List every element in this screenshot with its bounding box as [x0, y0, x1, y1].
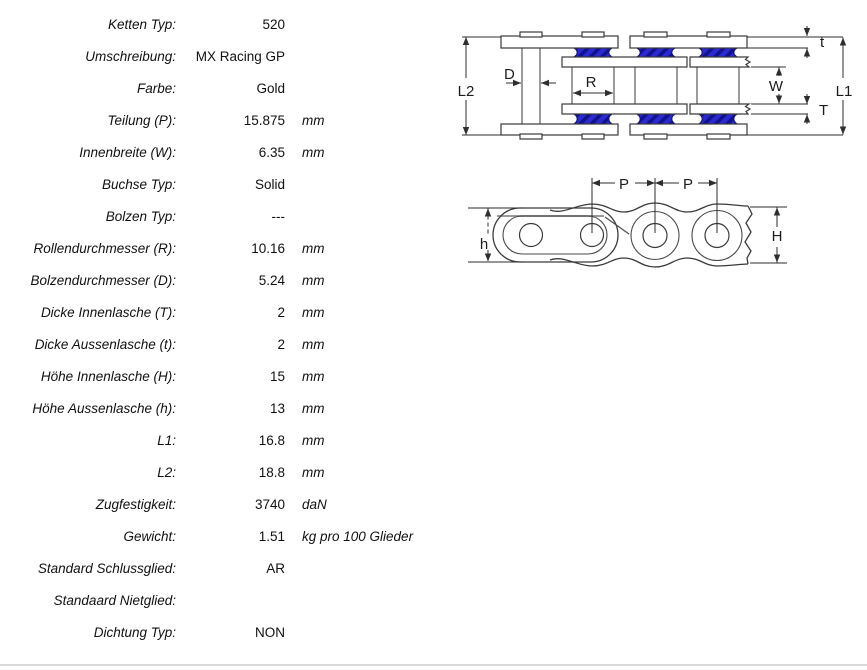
dim-label-l1: L1	[836, 83, 853, 100]
roller	[697, 113, 739, 125]
pin-end	[707, 134, 730, 139]
spec-row: Höhe Aussenlasche (h): 13 mm	[0, 393, 440, 425]
plate-edge-line	[605, 217, 629, 234]
spec-row: Bolzen Typ: ---	[0, 201, 440, 233]
dim-label-h: h	[480, 236, 488, 253]
spec-row: Ketten Typ: 520	[0, 9, 440, 41]
spec-row: Höhe Innenlasche (H): 15 mm	[0, 361, 440, 393]
spec-unit: mm	[302, 137, 437, 169]
pitch-extension-lines	[592, 178, 717, 233]
spec-label: Zugfestigkeit:	[0, 489, 176, 521]
outer-plate	[501, 124, 618, 135]
top-view-diagram: L2 D R W t T L1	[458, 26, 853, 139]
pin-end	[520, 134, 542, 139]
spec-unit: mm	[302, 265, 437, 297]
spec-label: L1:	[0, 425, 176, 457]
dim-label-d: D	[504, 66, 515, 83]
spec-value: 6.35	[180, 137, 285, 169]
spec-row: Teilung (P): 15.875 mm	[0, 105, 440, 137]
inner-plate	[562, 104, 687, 114]
roller	[572, 47, 614, 58]
spec-label: Farbe:	[0, 73, 176, 105]
dim-label-t-big: T	[819, 102, 828, 119]
spec-row: L2: 18.8 mm	[0, 457, 440, 489]
spec-label: Gewicht:	[0, 521, 176, 553]
dim-label-r: R	[586, 74, 597, 91]
spec-table: Ketten Typ: 520 Umschreibung: MX Racing …	[0, 9, 440, 649]
spec-unit: mm	[302, 329, 437, 361]
outer-plate	[501, 36, 618, 48]
break-edge	[745, 206, 752, 264]
spec-unit: mm	[302, 297, 437, 329]
spec-value: 3740	[180, 489, 285, 521]
spec-label: Innenbreite (W):	[0, 137, 176, 169]
spec-value: Gold	[180, 73, 285, 105]
pin-end	[707, 32, 730, 37]
pin-shaft	[522, 48, 540, 124]
dim-label-p2: P	[683, 176, 693, 193]
inner-plate	[690, 104, 750, 114]
spec-row: Rollendurchmesser (R): 10.16 mm	[0, 233, 440, 265]
spec-row: Dicke Innenlasche (T): 2 mm	[0, 297, 440, 329]
spec-label: Standaard Nietglied:	[0, 585, 176, 617]
spec-row: Standaard Nietglied:	[0, 585, 440, 617]
spec-row: Dichtung Typ: NON	[0, 617, 440, 649]
dim-label-p1: P	[619, 176, 629, 193]
chain-diagrams: L2 D R W t T L1	[440, 0, 867, 320]
spec-row: Dicke Aussenlasche (t): 2 mm	[0, 329, 440, 361]
pin-end	[520, 32, 542, 37]
spec-value: 5.24	[180, 265, 285, 297]
spec-label: Bolzen Typ:	[0, 201, 176, 233]
roller	[572, 113, 614, 125]
roller	[635, 47, 677, 58]
spec-value: 18.8	[180, 457, 285, 489]
spec-value: 15.875	[180, 105, 285, 137]
spec-value: ---	[180, 201, 285, 233]
pin-end	[582, 32, 604, 37]
spec-unit: kg pro 100 Glieder	[302, 521, 437, 553]
spec-label: Dicke Innenlasche (T):	[0, 297, 176, 329]
spec-label: Buchse Typ:	[0, 169, 176, 201]
spec-unit: mm	[302, 361, 437, 393]
spec-row: Buchse Typ: Solid	[0, 169, 440, 201]
spec-label: Teilung (P):	[0, 105, 176, 137]
spec-unit: mm	[302, 425, 437, 457]
spec-value: Solid	[180, 169, 285, 201]
dim-label-l2: L2	[458, 83, 475, 100]
spec-label: Höhe Aussenlasche (h):	[0, 393, 176, 425]
spec-value: 10.16	[180, 233, 285, 265]
spec-unit: mm	[302, 233, 437, 265]
pin-end	[644, 32, 667, 37]
pin-hole	[520, 224, 543, 247]
spec-value: MX Racing GP	[180, 41, 285, 73]
outer-plate	[630, 124, 747, 135]
spec-value: 2	[180, 329, 285, 361]
roller	[697, 47, 739, 58]
spec-value: 2	[180, 297, 285, 329]
roller	[635, 113, 677, 125]
inner-plate	[690, 57, 750, 67]
spec-value: 16.8	[180, 425, 285, 457]
dim-label-w: W	[769, 78, 784, 95]
bushing-lines	[572, 67, 739, 104]
spec-unit: mm	[302, 393, 437, 425]
spec-value: 13	[180, 393, 285, 425]
spec-label: Ketten Typ:	[0, 9, 176, 41]
bottom-divider	[0, 664, 867, 666]
spec-label: Umschreibung:	[0, 41, 176, 73]
spec-label: Dichtung Typ:	[0, 617, 176, 649]
spec-row: Bolzendurchmesser (D): 5.24 mm	[0, 265, 440, 297]
spec-value: 1.51	[180, 521, 285, 553]
spec-label: Bolzendurchmesser (D):	[0, 265, 176, 297]
spec-label: Rollendurchmesser (R):	[0, 233, 176, 265]
spec-label: L2:	[0, 457, 176, 489]
spec-unit: mm	[302, 105, 437, 137]
spec-row: Standard Schlussglied: AR	[0, 553, 440, 585]
spec-row: L1: 16.8 mm	[0, 425, 440, 457]
pin-end	[644, 134, 667, 139]
spec-label: Dicke Aussenlasche (t):	[0, 329, 176, 361]
outer-plate	[630, 36, 747, 48]
spec-row: Innenbreite (W): 6.35 mm	[0, 137, 440, 169]
spec-row: Gewicht: 1.51 kg pro 100 Glieder	[0, 521, 440, 553]
spec-label: Standard Schlussglied:	[0, 553, 176, 585]
spec-unit: daN	[302, 489, 437, 521]
spec-value: NON	[180, 617, 285, 649]
spec-unit: mm	[302, 457, 437, 489]
spec-row: Umschreibung: MX Racing GP	[0, 41, 440, 73]
spec-value: AR	[180, 553, 285, 585]
spec-row: Zugfestigkeit: 3740 daN	[0, 489, 440, 521]
spec-value: 15	[180, 361, 285, 393]
spec-label: Höhe Innenlasche (H):	[0, 361, 176, 393]
side-view-diagram: P P h H	[468, 176, 787, 267]
spec-row: Farbe: Gold	[0, 73, 440, 105]
chain-diagram-svg: L2 D R W t T L1	[440, 0, 867, 320]
pin-end	[582, 134, 604, 139]
spec-value: 520	[180, 9, 285, 41]
inner-plate	[562, 57, 687, 67]
dim-label-h-big: H	[772, 228, 783, 245]
